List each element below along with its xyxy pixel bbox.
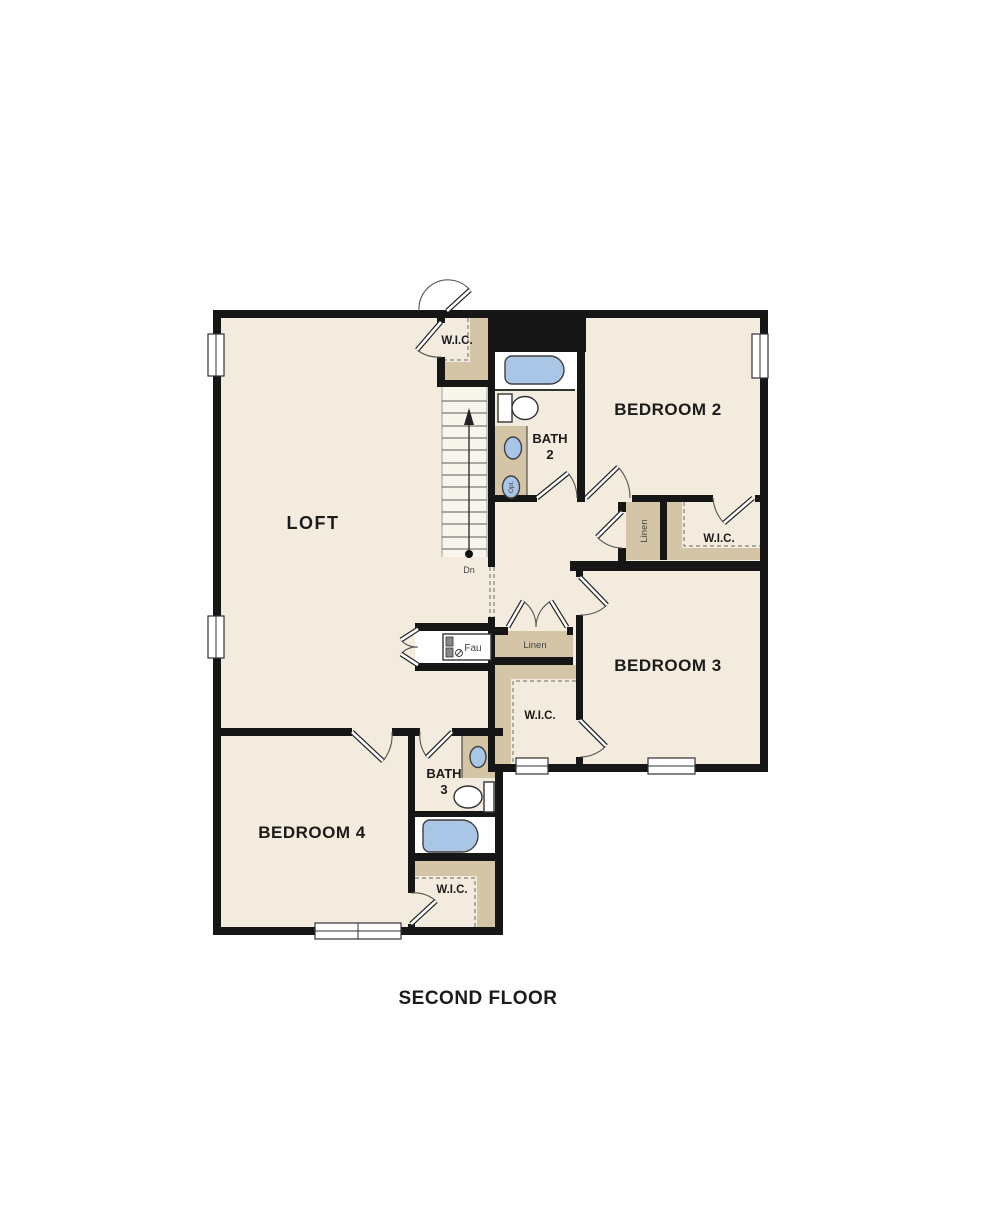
page-title: SECOND FLOOR [398,988,557,1009]
fau-label: Fau [464,643,481,654]
wall-linen-lower-top-b [567,627,573,635]
bath3-tub [423,820,478,852]
wall-linen-lower-top-a [495,627,508,635]
bedroom2-label: BEDROOM 2 [614,400,721,419]
bath2-toilet-tank [498,394,512,422]
bath3-toilet-tank [484,782,494,812]
wall-bath3-wic-divider [408,853,503,861]
wall-fau-bottom [415,663,495,671]
bedroom4-label: BEDROOM 4 [258,823,366,842]
linen-lower-label: Linen [523,640,546,651]
wic-top-outer-door [447,290,470,311]
wall-linen-lower-bottom [495,657,573,665]
bath2-label-line2: 2 [546,447,553,462]
bedroom3-label: BEDROOM 3 [614,656,721,675]
linen-upper-label: Linen [639,519,650,542]
wall-linen-upper-stub-top [618,502,626,512]
loft-label: LOFT [287,513,340,533]
wall-bedroom4-top-a [221,728,352,736]
optional-sink-label: Opt. [508,481,515,493]
bath3-sink [470,747,486,768]
stairs-down-label: Dn [463,565,475,575]
bath3-label-line2: 3 [440,782,447,797]
bath2-sink [505,437,522,459]
wic-bedroom4-shelf-right [477,876,495,927]
bath2-label-line1: BATH [532,431,567,446]
bath2-toilet-bowl [512,397,538,420]
wic-top-shelf-right [470,318,488,380]
void-chase [488,310,586,352]
wic-bedroom2-shelf-left [667,502,682,560]
wall-hall-north-b [632,495,713,502]
wall-exterior-mid-vertical [495,764,503,935]
wall-hall-north-c [755,495,768,502]
wall-stair-right [488,352,495,567]
fau-vent-top [446,637,453,646]
wall-wic-top-bottom [437,380,495,387]
fau-vent-bottom [446,648,453,657]
wic-bedroom3-shelf-left [495,665,511,764]
wall-bedroom4-top-c [452,728,503,736]
wall-fau-top [415,623,495,631]
wall-bedroom3-west-a [576,561,583,577]
wic-top-shelf-bottom [445,362,470,380]
wic-bedroom2-shelf-bottom [682,548,760,560]
wall-exterior-right [760,310,768,772]
wall-bedroom2-west [577,310,585,502]
wic-top-label: W.I.C. [441,335,472,347]
bath3-label-line1: BATH [426,766,461,781]
wall-bedroom3-west-b [576,615,583,720]
wic-bedroom4-shelf-top [415,861,495,876]
wic-bedroom2-label: W.I.C. [703,533,734,545]
wall-bath3-west-stub [408,924,415,935]
stair-newel-dot [465,550,473,558]
floor-plan-page: LOFT BEDROOM 2 BEDROOM 3 BEDROOM 4 BATH … [0,0,1000,1223]
wall-bedroom3-west-c [576,757,583,772]
bath3-toilet-bowl [454,786,482,808]
wall-bedroom3-top [570,561,768,571]
wall-bath3-west [408,728,415,893]
staircase [441,387,488,558]
wall-linen-wic2-divider [660,502,667,560]
wall-bedroom4-top-b [392,728,420,736]
bath2-tub [505,356,564,384]
wic-bedroom3-label: W.I.C. [524,710,555,722]
wic-bedroom4-label: W.I.C. [436,884,467,896]
floor-plan-svg: LOFT BEDROOM 2 BEDROOM 3 BEDROOM 4 BATH … [0,0,1000,1223]
wic-bedroom3-shelf-top [511,665,576,679]
wall-bath3-tub-divider [412,811,495,817]
